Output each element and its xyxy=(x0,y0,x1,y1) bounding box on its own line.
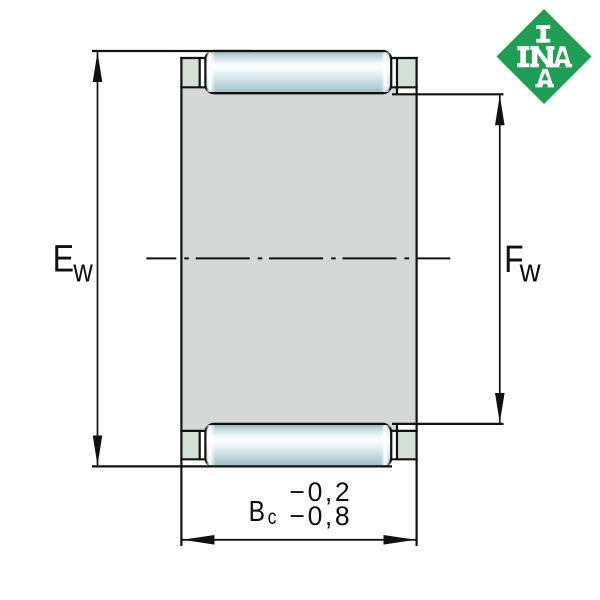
svg-text:w: w xyxy=(519,252,542,288)
svg-text:−0,8: −0,8 xyxy=(290,501,353,531)
svg-text:B: B xyxy=(249,496,265,528)
svg-text:c: c xyxy=(268,506,277,529)
svg-text:E: E xyxy=(53,238,74,280)
svg-text:w: w xyxy=(73,252,94,288)
